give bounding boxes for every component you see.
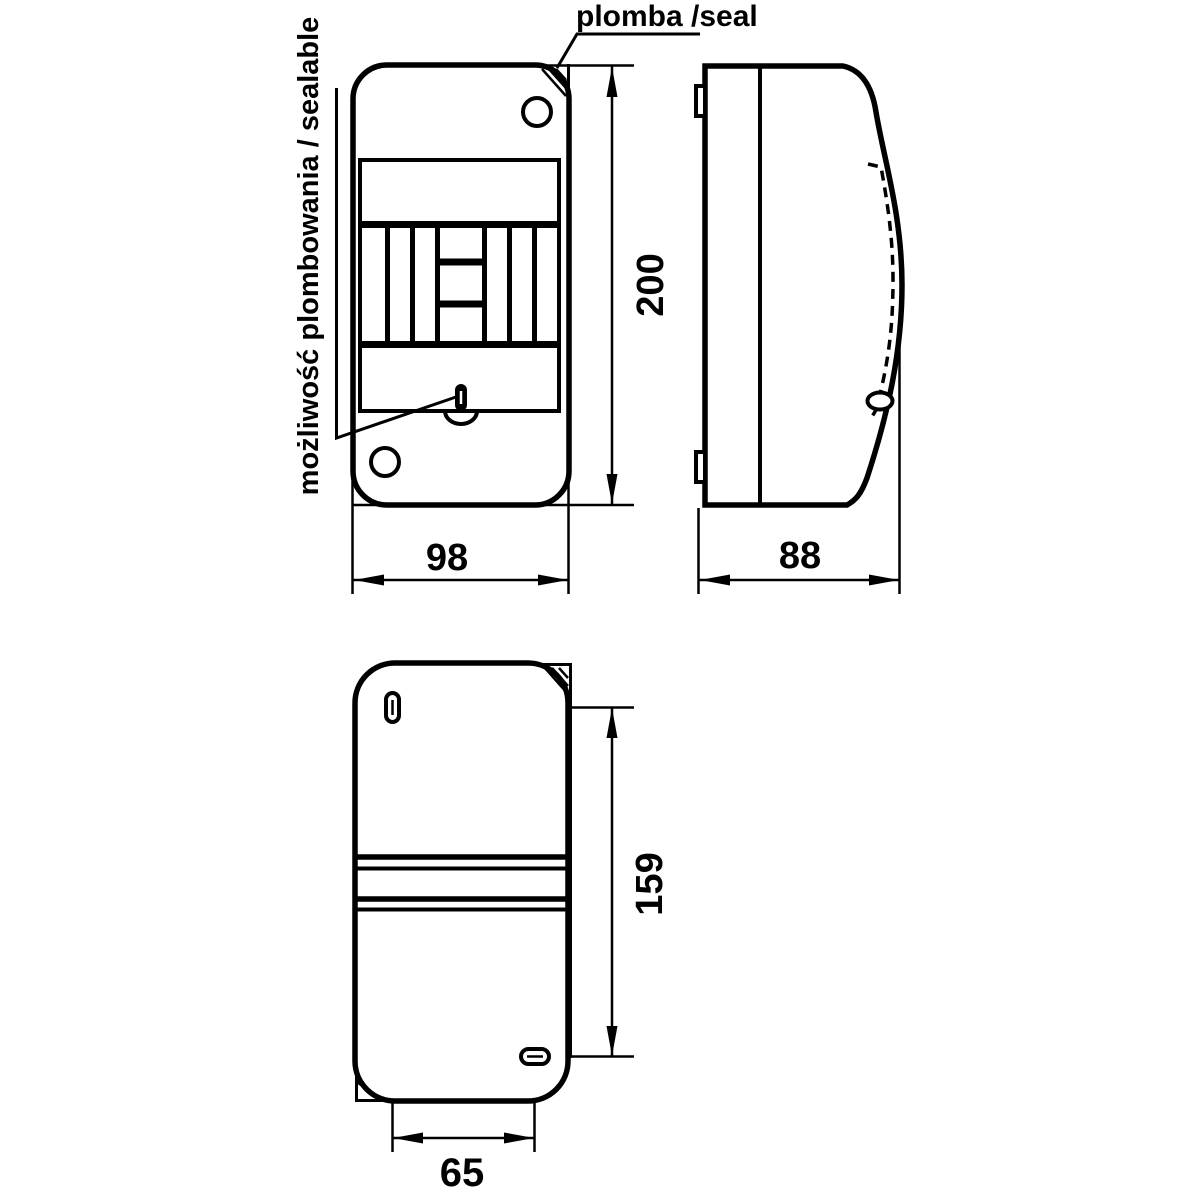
dim-label-side-depth: 88 bbox=[779, 535, 821, 577]
mounting-slot-top bbox=[386, 693, 399, 722]
sealable-label: możliwość plombowania / sealable bbox=[293, 17, 325, 496]
wall-clip-top bbox=[696, 86, 705, 116]
seal-label: plomba /seal bbox=[576, 0, 758, 33]
wall-clip-bottom bbox=[696, 452, 705, 482]
side-cover-outline bbox=[705, 66, 902, 505]
back-shell bbox=[355, 663, 568, 1101]
dim-label-slot-vertical: 159 bbox=[629, 852, 671, 915]
seal-latch bbox=[455, 384, 467, 411]
seal-eyelet bbox=[868, 393, 893, 410]
dim-label-front-height: 200 bbox=[630, 253, 672, 316]
technical-drawing-enclosure: plomba /seal możliwość plombowania / sea… bbox=[0, 0, 1200, 1200]
dim-label-slot-horizontal: 65 bbox=[440, 1151, 485, 1195]
canvas-background bbox=[0, 0, 1200, 1200]
dim-label-front-width: 98 bbox=[426, 537, 468, 579]
mounting-slot-bottom bbox=[521, 1049, 549, 1064]
